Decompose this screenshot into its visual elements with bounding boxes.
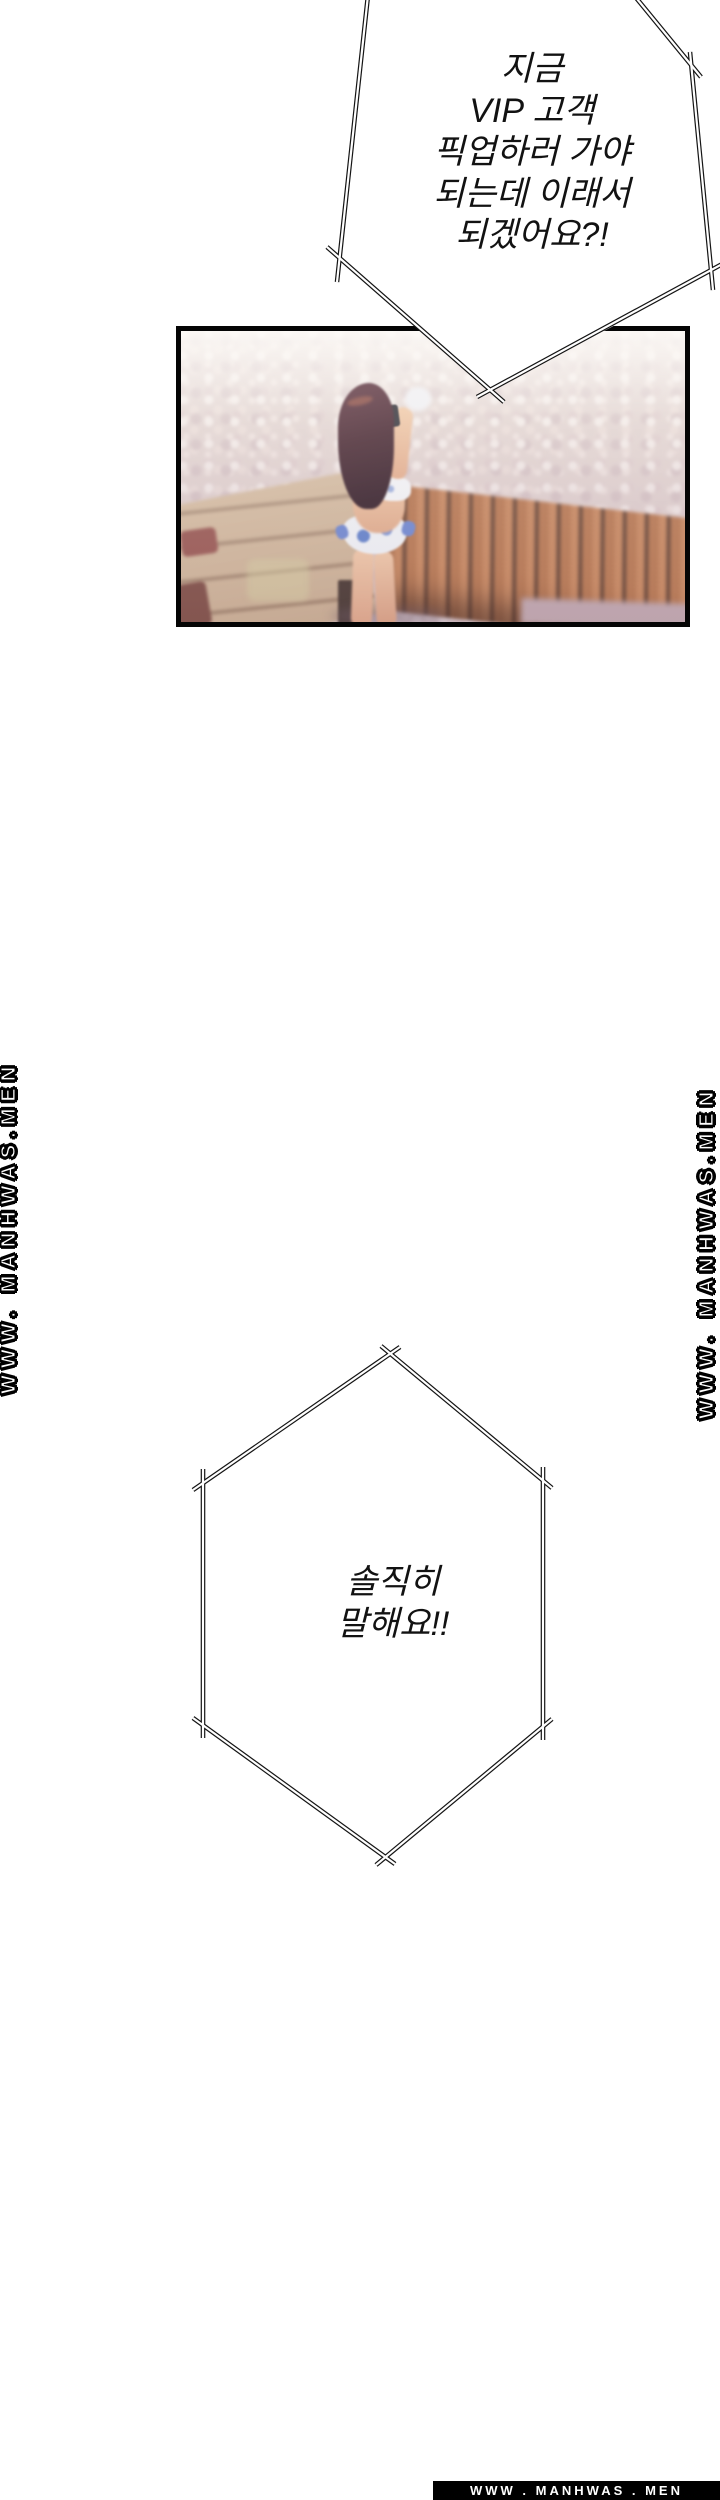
bubble-line: 지금 — [377, 49, 687, 91]
bubble-line: 말해요!! — [243, 1603, 543, 1645]
bubble-line: 되겠어요?! — [377, 215, 687, 257]
bubble-line: 되는데 이래서 — [377, 174, 687, 216]
hex-speech-bubble-text: 솔직히 말해요!! — [243, 1561, 543, 1645]
bubble-line: 픽업하러 가야 — [377, 132, 687, 174]
speech-bubble-top-text: 지금 VIP 고객 픽업하러 가야 되는데 이래서 되겠어요?! — [377, 49, 687, 257]
footer-site-url[interactable]: WWW . MANHWAS . MEN — [433, 2481, 720, 2500]
comic-page: 지금 VIP 고객 픽업하러 가야 되는데 이래서 되겠어요?! WWW. MA… — [0, 0, 720, 2500]
bubble-line: 솔직히 — [243, 1561, 543, 1603]
bubble-line: VIP 고객 — [377, 91, 687, 133]
